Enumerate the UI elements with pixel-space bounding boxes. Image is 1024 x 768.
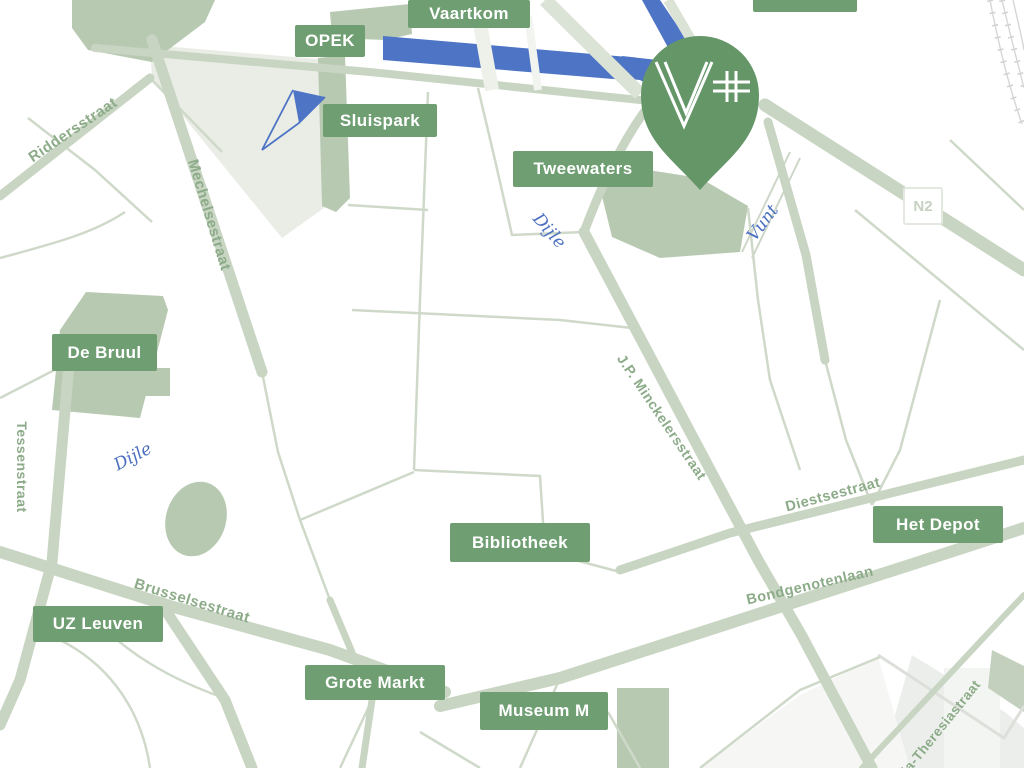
place-label-uz-leuven: UZ Leuven — [33, 606, 163, 642]
n2-road-badge: N2 — [903, 187, 943, 225]
place-label-text: Bibliotheek — [472, 533, 568, 553]
place-label-opek: OPEK — [295, 25, 365, 57]
place-label-text: De Bruul — [67, 343, 141, 363]
place-label-text: UZ Leuven — [53, 614, 144, 634]
location-pin — [641, 36, 759, 190]
place-label-text: Het Depot — [896, 515, 980, 535]
park-museum — [617, 688, 669, 768]
place-label-text: Vaartkom — [429, 4, 509, 24]
label-partial-top-right — [753, 0, 857, 12]
street-label-tessenstraat: Tessenstraat — [14, 421, 30, 512]
place-label-text: Sluispark — [340, 111, 420, 131]
place-label-tweewaters: Tweewaters — [513, 151, 653, 187]
place-label-bibliotheek: Bibliotheek — [450, 523, 590, 562]
place-label-text: Museum M — [498, 701, 589, 721]
place-label-het-depot: Het Depot — [873, 506, 1003, 543]
map-graphics — [0, 0, 1024, 768]
place-label-grote-markt: Grote Markt — [305, 665, 445, 700]
place-label-text: Tweewaters — [533, 159, 632, 179]
place-label-text: OPEK — [305, 31, 355, 51]
place-label-vaartkom: Vaartkom — [408, 0, 530, 28]
railway-tracks — [990, 0, 1024, 124]
park-de-bruul-annex — [137, 368, 170, 396]
park-small — [156, 474, 237, 565]
place-label-museum-m: Museum M — [480, 692, 608, 730]
major-roads — [0, 40, 1024, 768]
place-label-text: Grote Markt — [325, 673, 425, 693]
n2-road-badge-text: N2 — [913, 198, 932, 215]
city-map: Vaartkom OPEK Sluispark Tweewaters De Br… — [0, 0, 1024, 768]
place-label-de-bruul: De Bruul — [52, 334, 157, 371]
place-label-sluispark: Sluispark — [323, 104, 437, 137]
